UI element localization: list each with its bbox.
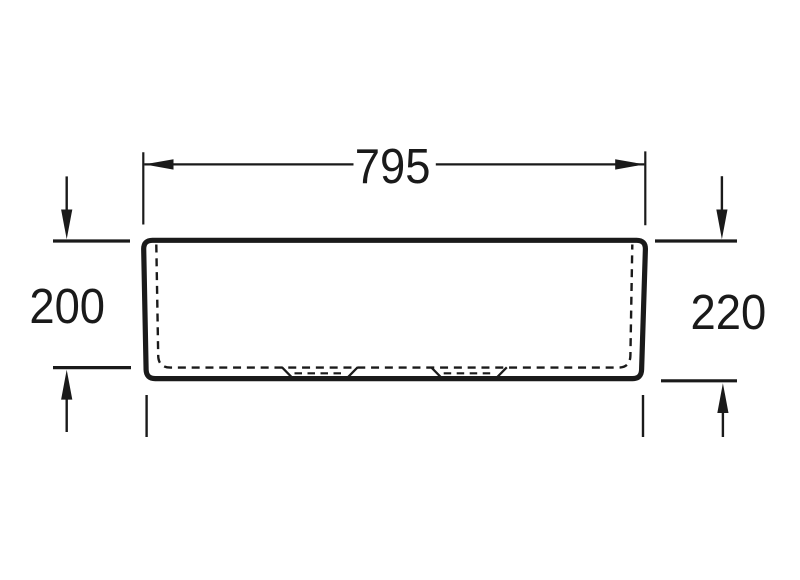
svg-text:795: 795: [355, 140, 431, 194]
svg-text:220: 220: [691, 286, 767, 340]
svg-text:200: 200: [29, 280, 105, 334]
